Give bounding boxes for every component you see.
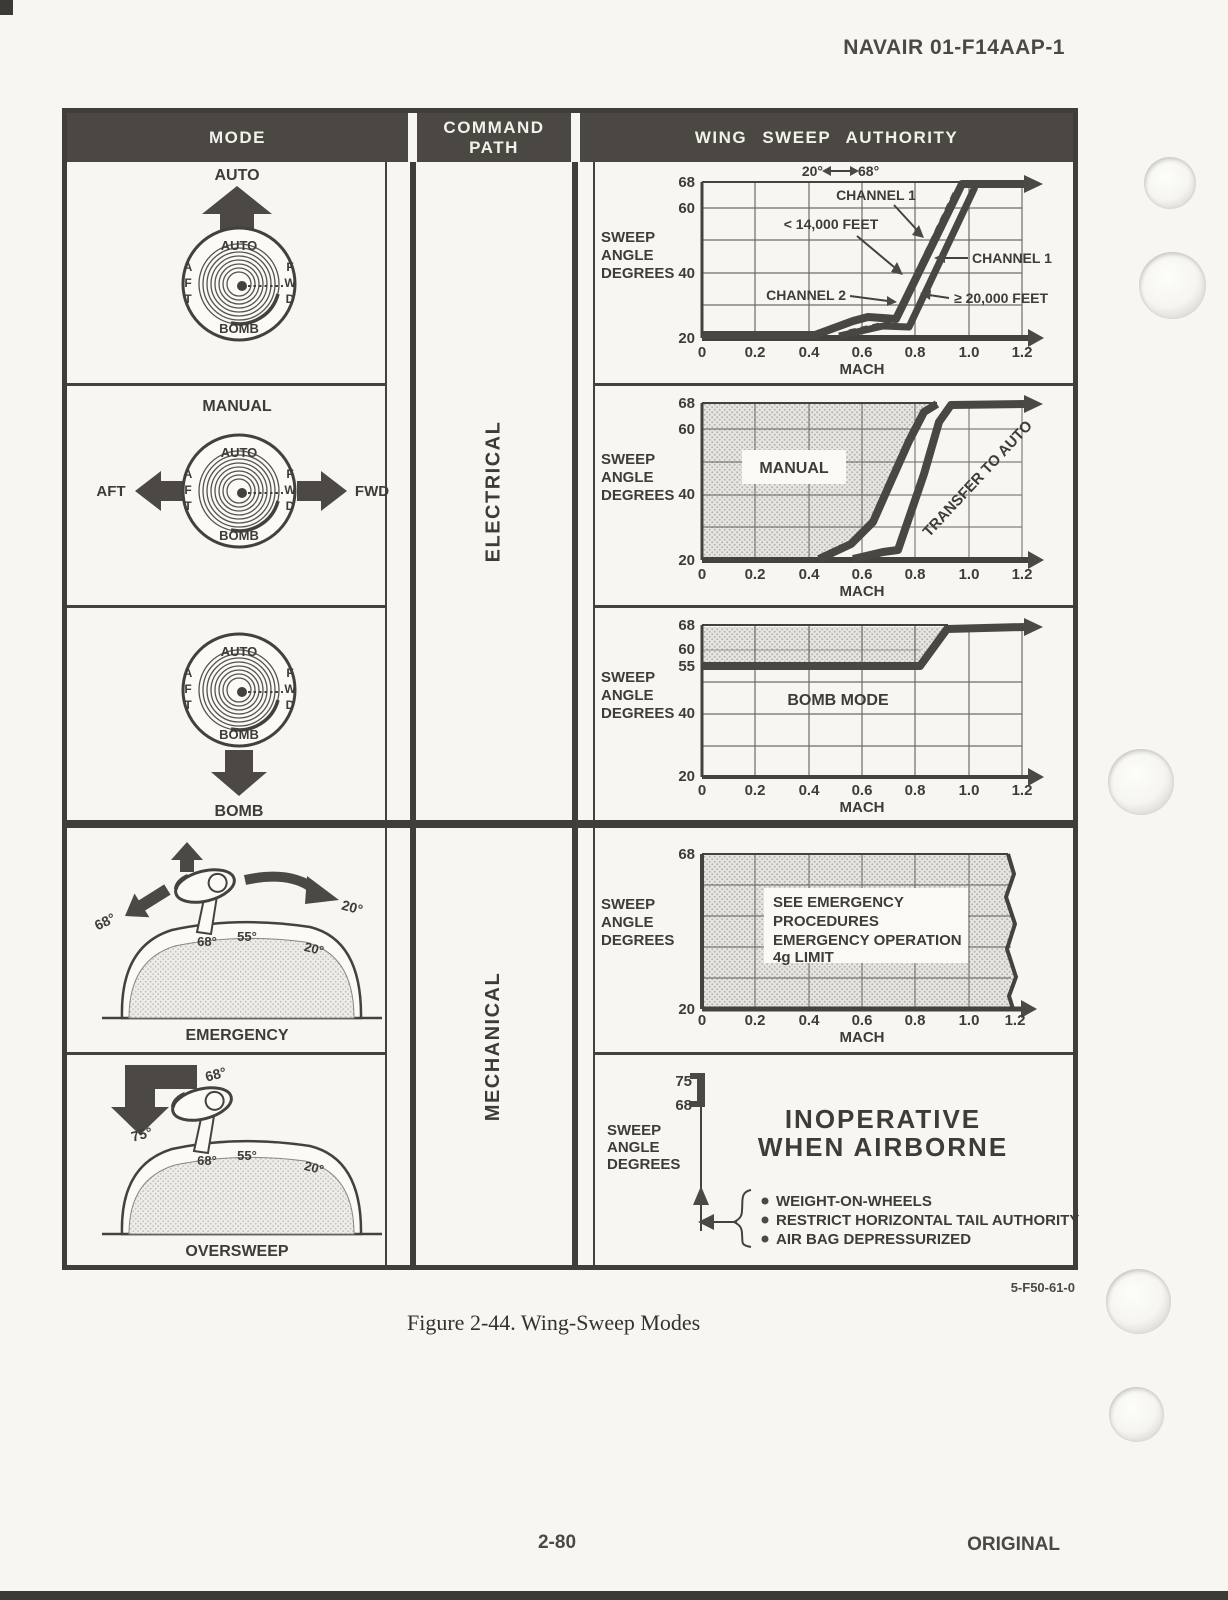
svg-text:0: 0	[698, 782, 706, 799]
svg-text:20°: 20°	[802, 163, 823, 179]
pointer-line	[894, 205, 917, 230]
pointer-line	[929, 295, 949, 298]
svg-text:W: W	[284, 276, 296, 290]
svg-text:T: T	[184, 499, 192, 513]
svg-text:60: 60	[678, 421, 695, 438]
svg-text:PROCEDURES: PROCEDURES	[773, 913, 879, 930]
range-bracket	[690, 1073, 705, 1107]
aft-label: AFT	[96, 483, 125, 500]
svg-text:0.8: 0.8	[905, 1012, 926, 1029]
svg-text:AUTO: AUTO	[221, 445, 258, 460]
condition-item: WEIGHT-ON-WHEELS	[776, 1193, 932, 1210]
svg-text:SWEEP: SWEEP	[607, 1122, 661, 1139]
svg-text:DEGREES: DEGREES	[601, 932, 674, 949]
svg-text:1.0: 1.0	[959, 566, 980, 583]
quadrant-angle-68: 68°	[197, 934, 217, 949]
electrical-label: ELECTRICAL	[482, 420, 505, 562]
x-axis-label: MACH	[840, 1029, 885, 1046]
page-number: 2-80	[527, 1532, 587, 1554]
condition-item: RESTRICT HORIZONTAL TAIL AUTHORITY	[776, 1212, 1079, 1229]
svg-text:ANGLE: ANGLE	[601, 914, 654, 931]
binder-hole	[1106, 1269, 1171, 1334]
svg-text:D: D	[286, 698, 295, 712]
svg-text:0.6: 0.6	[852, 344, 873, 361]
svg-text:DEGREES: DEGREES	[601, 487, 674, 504]
mode-cell-bomb: AUTO BOMB A F T F W D BOMB	[67, 608, 387, 820]
svg-text:W: W	[284, 483, 296, 497]
bullet-icon	[762, 1217, 769, 1224]
svg-text:SEE EMERGENCY: SEE EMERGENCY	[773, 894, 904, 911]
svg-text:0.8: 0.8	[905, 782, 926, 799]
y-axis-label: SWEEP ANGLE DEGREES	[601, 669, 674, 722]
scan-edge-artifact	[0, 1591, 1228, 1600]
svg-text:20: 20	[678, 330, 695, 347]
condition-list: WEIGHT-ON-WHEELS RESTRICT HORIZONTAL TAI…	[762, 1193, 1080, 1248]
raise-handle-arrow-icon	[171, 842, 203, 872]
svg-text:68: 68	[678, 174, 695, 191]
mode-title-manual: MANUAL	[202, 398, 272, 415]
svg-text:A: A	[184, 467, 193, 481]
panel-inoperative: SWEEP ANGLE DEGREES 75 68 INOPERATIVE WH…	[591, 1055, 1073, 1265]
binder-hole	[1144, 157, 1196, 209]
y-axis-label: SWEEP ANGLE DEGREES	[601, 229, 674, 282]
svg-text:ANGLE: ANGLE	[601, 469, 654, 486]
channel1-top-label: CHANNEL 1	[836, 187, 916, 203]
svg-text:1.2: 1.2	[1005, 1012, 1026, 1029]
bullet-icon	[762, 1236, 769, 1243]
svg-text:60: 60	[678, 641, 695, 658]
quadrant-angle-68: 68°	[197, 1153, 217, 1168]
curve-arrow-icon	[1024, 395, 1043, 413]
svg-text:ANGLE: ANGLE	[607, 1139, 660, 1156]
wing-sweep-wheel-dial: AUTO BOMB A F T F W D	[183, 228, 296, 340]
oversweep-angle-75: 75	[675, 1073, 692, 1090]
curved-arrow-head	[305, 876, 339, 904]
svg-text:1.0: 1.0	[959, 344, 980, 361]
svg-text:20: 20	[678, 1001, 695, 1018]
svg-text:68: 68	[678, 846, 695, 863]
svg-text:T: T	[184, 698, 192, 712]
x-tick-labels: 0 0.2 0.4 0.6 0.8 1.0 1.2	[698, 344, 1033, 361]
svg-text:0.8: 0.8	[905, 344, 926, 361]
svg-text:0: 0	[698, 566, 706, 583]
svg-text:T: T	[184, 292, 192, 306]
manual-region-label: MANUAL	[759, 460, 829, 477]
high-altitude-label: ≥ 20,000 FEET	[954, 290, 1049, 306]
header-mode: MODE	[67, 113, 408, 162]
oversweep-from-angle: 68°	[203, 1064, 228, 1085]
dial-label-auto: AUTO	[221, 238, 258, 253]
svg-text:0.4: 0.4	[799, 566, 821, 583]
edition-label: ORIGINAL	[967, 1534, 1060, 1556]
mode-cell-emergency: 68° 55° 20° 68° 20° EMERGENCY	[67, 828, 387, 1052]
svg-text:1.0: 1.0	[959, 1012, 980, 1029]
chart-emergency: SWEEP ANGLE DEGREES SEE EMERGENCY PROCED…	[591, 828, 1073, 1052]
quadrant-angle-55: 55°	[237, 1148, 257, 1163]
svg-text:INOPERATIVE: INOPERATIVE	[785, 1104, 981, 1134]
svg-text:0.6: 0.6	[852, 566, 873, 583]
condition-item: AIR BAG DEPRESSURIZED	[776, 1231, 971, 1248]
emergency-fwd-angle: 20°	[340, 897, 365, 918]
chart-auto: SWEEP ANGLE DEGREES 20°	[591, 162, 1073, 383]
mode-cell-manual: MANUAL AFT AUTO BOMB A F T F W D FWD	[67, 386, 387, 605]
left-block-arrow-icon	[135, 471, 185, 511]
binder-hole	[1108, 749, 1174, 815]
dial-pointer	[237, 281, 247, 291]
scan-corner-artifact	[0, 0, 13, 15]
right-block-arrow-icon	[297, 471, 347, 511]
svg-text:1.2: 1.2	[1012, 566, 1033, 583]
oversweep-angle-68: 68	[675, 1097, 692, 1114]
divider-electrical-mechanical	[67, 820, 1073, 828]
mode-title-oversweep: OVERSWEEP	[185, 1243, 288, 1260]
command-path-electrical: ELECTRICAL	[416, 162, 572, 820]
svg-text:WHEN AIRBORNE: WHEN AIRBORNE	[758, 1132, 1008, 1162]
svg-text:40: 40	[678, 705, 695, 722]
document-reference: NAVAIR 01-F14AAP-1	[843, 36, 1065, 60]
bomb-mode-label: BOMB MODE	[787, 692, 889, 709]
y-axis-label: SWEEP ANGLE DEGREES	[601, 451, 674, 504]
svg-text:68: 68	[678, 617, 695, 634]
y-axis-label: SWEEP ANGLE DEGREES	[607, 1122, 680, 1173]
svg-text:SWEEP: SWEEP	[601, 451, 655, 468]
binder-hole	[1139, 252, 1206, 319]
pointer-line	[850, 296, 888, 301]
wing-sweep-wheel-dial: AUTO BOMB A F T F W D	[183, 634, 296, 746]
svg-text:0.2: 0.2	[745, 782, 766, 799]
sweep-fwd-curved-arrow-icon	[245, 877, 315, 890]
bullet-icon	[762, 1198, 769, 1205]
chart-bomb: SWEEP ANGLE DEGREES BOMB MODE 68 60	[591, 608, 1073, 820]
sweep-aft-arrow-icon	[118, 878, 175, 928]
svg-text:ANGLE: ANGLE	[601, 247, 654, 264]
figure-caption: Figure 2-44. Wing-Sweep Modes	[407, 1310, 700, 1336]
svg-text:0.8: 0.8	[905, 566, 926, 583]
svg-text:40: 40	[678, 486, 695, 503]
x-axis-label: MACH	[840, 583, 885, 600]
header-command-path: COMMAND PATH	[417, 113, 571, 162]
emergency-aft-angle: 68°	[92, 910, 118, 934]
svg-text:D: D	[286, 499, 295, 513]
up-block-arrow-icon	[202, 186, 272, 232]
binder-hole	[1109, 1387, 1164, 1442]
svg-text:BOMB: BOMB	[219, 727, 259, 742]
svg-text:0.6: 0.6	[852, 1012, 873, 1029]
svg-text:0.2: 0.2	[745, 1012, 766, 1029]
channel2-label: CHANNEL 2	[766, 287, 846, 303]
svg-text:1.0: 1.0	[959, 782, 980, 799]
mode-title-emergency: EMERGENCY	[185, 1027, 288, 1044]
up-arrow-icon	[693, 1186, 709, 1205]
svg-text:0.4: 0.4	[799, 1012, 821, 1029]
x-axis-label: MACH	[840, 361, 885, 378]
figure-drawing-number: 5-F50-61-0	[1011, 1280, 1075, 1295]
channel1-right-label: CHANNEL 1	[972, 250, 1052, 266]
svg-text:60: 60	[678, 200, 695, 217]
mode-cell-oversweep: 68° 55° 20° 68° 75° OVERSWEEP	[67, 1055, 387, 1265]
header-wing-sweep-authority: WING SWEEP AUTHORITY	[580, 113, 1073, 162]
svg-text:D: D	[286, 292, 295, 306]
quadrant-angle-55: 55°	[237, 929, 257, 944]
svg-text:40: 40	[678, 265, 695, 282]
svg-text:DEGREES: DEGREES	[601, 265, 674, 282]
svg-text:0: 0	[698, 344, 706, 361]
svg-text:AUTO: AUTO	[221, 644, 258, 659]
svg-text:0.2: 0.2	[745, 566, 766, 583]
svg-text:F: F	[184, 483, 191, 497]
manual-page: NAVAIR 01-F14AAP-1 MODE COMMAND PATH WIN…	[0, 0, 1228, 1600]
y-tick-labels: 68 60 40 20	[678, 174, 695, 347]
svg-text:68°: 68°	[858, 163, 879, 179]
x-tick-labels: 0 0.2 0.4 0.6 0.8 1.0 1.2	[698, 782, 1033, 799]
svg-text:SWEEP: SWEEP	[601, 669, 655, 686]
svg-text:1.2: 1.2	[1012, 782, 1033, 799]
wing-sweep-wheel-dial: AUTO BOMB A F T F W D	[183, 435, 296, 547]
wing-sweep-modes-table: MODE COMMAND PATH WING SWEEP AUTHORITY E…	[62, 108, 1078, 1270]
command-path-mechanical: MECHANICAL	[416, 828, 572, 1265]
dial-label-bomb: BOMB	[219, 321, 259, 336]
y-tick-labels: 68 60 55 40 20	[678, 617, 695, 785]
fwd-label: FWD	[355, 483, 389, 500]
svg-text:20: 20	[678, 552, 695, 569]
x-tick-labels: 0 0.2 0.4 0.6 0.8 1.0 1.2	[698, 1012, 1026, 1029]
channel1-high-alt-curve	[839, 187, 975, 336]
svg-text:0.2: 0.2	[745, 344, 766, 361]
svg-text:F: F	[184, 682, 191, 696]
low-altitude-label: < 14,000 FEET	[784, 216, 879, 232]
svg-text:68: 68	[678, 395, 695, 412]
range-annotation: 20° 68°	[802, 163, 879, 179]
x-axis-label: MACH	[840, 799, 885, 816]
svg-text:55: 55	[678, 658, 695, 675]
svg-text:EMERGENCY OPERATION: EMERGENCY OPERATION	[773, 932, 962, 949]
svg-text:W: W	[284, 682, 296, 696]
y-tick-labels: 68 60 40 20	[678, 395, 695, 569]
svg-text:DEGREES: DEGREES	[607, 1156, 680, 1173]
dial-label-fwd: F	[286, 260, 293, 274]
dial-label-aft: A	[184, 260, 193, 274]
down-block-arrow-icon	[211, 750, 267, 796]
svg-text:DEGREES: DEGREES	[601, 705, 674, 722]
bomb-band-shading	[702, 627, 948, 663]
mode-title-auto: AUTO	[214, 167, 259, 184]
svg-text:4g LIMIT: 4g LIMIT	[773, 949, 834, 966]
y-axis-label: SWEEP ANGLE DEGREES	[601, 896, 674, 949]
curly-brace	[734, 1190, 751, 1247]
mode-title-bomb: BOMB	[215, 803, 264, 820]
svg-text:F: F	[286, 666, 293, 680]
svg-text:BOMB: BOMB	[219, 528, 259, 543]
svg-text:SWEEP: SWEEP	[601, 896, 655, 913]
inoperative-title: INOPERATIVE WHEN AIRBORNE	[758, 1104, 1008, 1162]
svg-text:0.4: 0.4	[799, 344, 821, 361]
svg-text:0: 0	[698, 1012, 706, 1029]
divider	[572, 162, 578, 1265]
mechanical-label: MECHANICAL	[483, 972, 506, 1121]
svg-text:SWEEP: SWEEP	[601, 229, 655, 246]
x-tick-labels: 0 0.2 0.4 0.6 0.8 1.0 1.2	[698, 566, 1033, 583]
mode-cell-auto: AUTO AUTO BOMB A F T F W D	[67, 162, 387, 383]
svg-text:F: F	[184, 276, 191, 290]
curve-arrow-icon	[1024, 618, 1043, 636]
svg-text:ANGLE: ANGLE	[601, 687, 654, 704]
chart-manual: SWEEP ANGLE DEGREES MANUAL TRANSFER TO A…	[591, 386, 1073, 605]
y-tick-labels: 68 20	[678, 846, 695, 1018]
svg-text:F: F	[286, 467, 293, 481]
svg-text:0.4: 0.4	[799, 782, 821, 799]
curve-arrow-icon	[1024, 175, 1043, 193]
svg-text:A: A	[184, 666, 193, 680]
svg-text:0.6: 0.6	[852, 782, 873, 799]
svg-text:20: 20	[678, 768, 695, 785]
svg-text:1.2: 1.2	[1012, 344, 1033, 361]
